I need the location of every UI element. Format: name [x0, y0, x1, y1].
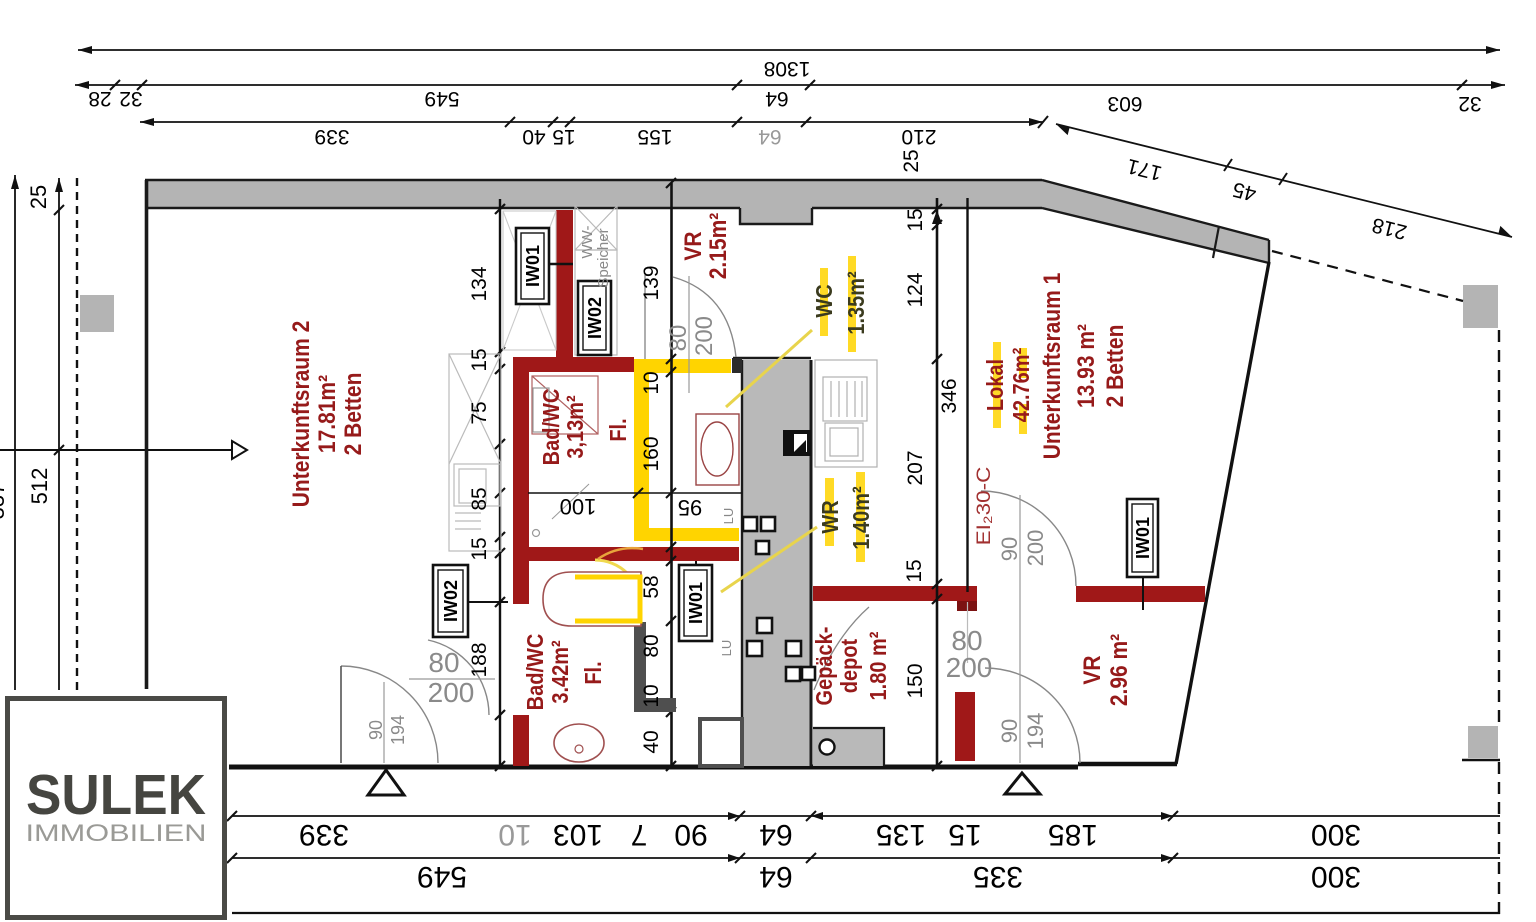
svg-text:64: 64: [758, 125, 782, 148]
svg-text:160: 160: [640, 436, 663, 471]
svg-text:LU: LU: [721, 508, 736, 525]
svg-text:194: 194: [388, 715, 408, 745]
svg-text:10: 10: [498, 818, 531, 851]
svg-text:17.81m²: 17.81m²: [314, 374, 341, 453]
svg-text:90: 90: [997, 537, 1022, 561]
svg-text:WC: WC: [811, 284, 838, 317]
svg-text:Unterkunftsraum 2: Unterkunftsraum 2: [288, 321, 315, 508]
svg-text:346: 346: [938, 378, 961, 413]
svg-text:335: 335: [973, 860, 1023, 893]
svg-text:200: 200: [946, 652, 993, 683]
svg-text:337: 337: [0, 483, 9, 520]
svg-text:549: 549: [424, 87, 459, 110]
svg-text:1.80 m²: 1.80 m²: [865, 632, 892, 701]
svg-text:512: 512: [27, 468, 52, 505]
svg-text:40: 40: [522, 125, 545, 148]
svg-text:80: 80: [428, 647, 459, 678]
svg-text:EI₂30-C: EI₂30-C: [973, 467, 994, 546]
svg-text:2.15m²: 2.15m²: [705, 212, 732, 279]
svg-text:1.40m²: 1.40m²: [848, 486, 875, 549]
svg-text:Speicher: Speicher: [595, 228, 612, 287]
svg-text:Lokal: Lokal: [982, 359, 1009, 411]
svg-text:135: 135: [876, 818, 926, 851]
svg-text:IW01: IW01: [686, 582, 706, 624]
svg-text:42.76m²: 42.76m²: [1008, 348, 1035, 422]
svg-text:15: 15: [903, 559, 926, 582]
svg-text:10: 10: [640, 684, 663, 707]
svg-text:Bad/WC: Bad/WC: [522, 634, 549, 711]
svg-text:WW-: WW-: [579, 225, 596, 258]
svg-text:124: 124: [904, 272, 927, 307]
svg-text:3.42m²: 3.42m²: [547, 640, 574, 703]
svg-text:80: 80: [665, 325, 692, 352]
svg-text:15: 15: [948, 818, 981, 851]
svg-text:SULEK: SULEK: [26, 763, 206, 827]
svg-text:IW02: IW02: [441, 580, 461, 622]
svg-text:90: 90: [674, 818, 707, 851]
svg-text:VR: VR: [680, 231, 707, 260]
svg-text:200: 200: [1023, 530, 1048, 567]
svg-text:IW01: IW01: [1133, 517, 1153, 559]
svg-text:15: 15: [552, 125, 575, 148]
svg-text:IW02: IW02: [585, 297, 605, 339]
svg-text:Fl.: Fl.: [605, 418, 632, 441]
svg-text:13.93 m²: 13.93 m²: [1073, 324, 1100, 408]
svg-text:85: 85: [468, 487, 491, 510]
svg-text:2 Betten: 2 Betten: [340, 373, 367, 456]
svg-text:103: 103: [553, 818, 603, 851]
svg-text:28: 28: [88, 87, 111, 110]
svg-text:188: 188: [468, 642, 491, 677]
svg-text:549: 549: [417, 860, 467, 893]
svg-text:100: 100: [560, 494, 597, 519]
svg-text:Bad/WC: Bad/WC: [538, 389, 565, 466]
svg-text:2 Betten: 2 Betten: [1102, 325, 1129, 408]
svg-text:185: 185: [1048, 818, 1098, 851]
svg-text:300: 300: [1311, 818, 1361, 851]
svg-text:150: 150: [904, 663, 927, 698]
svg-text:32: 32: [1458, 92, 1481, 115]
svg-text:Gepäck-: Gepäck-: [811, 627, 838, 706]
svg-text:200: 200: [691, 316, 718, 356]
svg-text:80: 80: [640, 634, 663, 657]
svg-text:WR: WR: [817, 500, 844, 534]
svg-text:139: 139: [640, 265, 663, 300]
svg-text:Fl.: Fl.: [580, 661, 607, 684]
svg-text:75: 75: [468, 401, 491, 424]
svg-text:58: 58: [640, 575, 663, 598]
svg-text:339: 339: [314, 125, 349, 148]
svg-text:95: 95: [678, 495, 702, 520]
svg-text:339: 339: [299, 818, 349, 851]
svg-text:64: 64: [759, 818, 792, 851]
svg-text:depot: depot: [836, 639, 863, 693]
svg-text:210: 210: [901, 125, 936, 148]
svg-text:VR: VR: [1079, 655, 1106, 684]
svg-text:207: 207: [904, 450, 927, 485]
svg-text:1.35m²: 1.35m²: [843, 271, 870, 334]
svg-text:134: 134: [468, 266, 491, 301]
svg-text:90: 90: [997, 719, 1022, 743]
svg-text:IW01: IW01: [523, 245, 543, 287]
svg-text:300: 300: [1311, 860, 1361, 893]
svg-text:10: 10: [640, 371, 663, 394]
svg-text:2.96 m²: 2.96 m²: [1106, 633, 1133, 706]
svg-text:1308: 1308: [764, 57, 811, 80]
svg-text:IMMOBILIEN: IMMOBILIEN: [26, 820, 207, 847]
svg-text:64: 64: [759, 860, 792, 893]
svg-text:90: 90: [366, 720, 386, 740]
svg-text:155: 155: [637, 125, 672, 148]
svg-text:32: 32: [119, 87, 142, 110]
svg-text:603: 603: [1107, 92, 1142, 115]
svg-text:194: 194: [1023, 713, 1048, 750]
svg-text:64: 64: [765, 87, 789, 110]
svg-text:7: 7: [631, 818, 648, 851]
svg-text:3,13m²: 3,13m²: [562, 395, 589, 458]
svg-text:40: 40: [640, 730, 663, 753]
svg-text:15: 15: [468, 348, 491, 371]
svg-text:15: 15: [468, 537, 491, 560]
svg-text:LU: LU: [719, 640, 734, 657]
svg-text:25: 25: [26, 185, 51, 209]
svg-text:25: 25: [900, 149, 923, 172]
svg-text:200: 200: [428, 677, 475, 708]
svg-text:15: 15: [904, 208, 927, 231]
svg-text:Unterkunftsraum 1: Unterkunftsraum 1: [1039, 273, 1066, 460]
